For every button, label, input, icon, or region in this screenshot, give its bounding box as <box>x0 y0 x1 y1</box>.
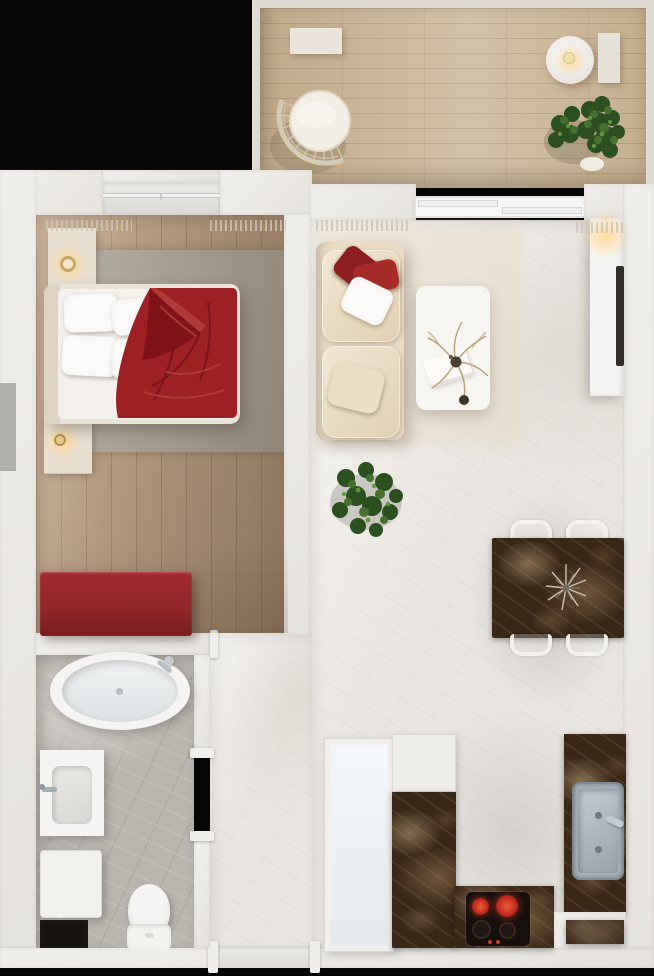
bedroom-door-frame <box>210 630 218 658</box>
cooktop-knob-1 <box>488 940 492 944</box>
balcony-potted-plant <box>540 84 636 180</box>
wall-left-niche <box>0 383 16 471</box>
sink-drain-bottom <box>595 846 602 853</box>
hallway-floor <box>210 633 312 948</box>
coffee-table-decor-branches <box>420 316 490 412</box>
wall-window-top-band <box>103 170 220 182</box>
cooktop-knob-2 <box>496 940 500 944</box>
bathroom-door-frame-bottom <box>190 831 214 841</box>
balcony-wall-shelf <box>290 28 342 54</box>
bathroom-door-frame-top <box>190 748 214 758</box>
dining-centerpiece <box>542 554 590 618</box>
burner-hot-large <box>496 895 518 917</box>
red-dresser-bench <box>40 572 192 636</box>
bathtub-drain <box>116 688 123 695</box>
wardrobe-top-panel <box>331 745 387 945</box>
kitchen-counter-left <box>392 792 456 948</box>
floorplan-stage <box>0 0 654 976</box>
wall-top-living-left <box>310 184 416 220</box>
wicker-lounge-chair <box>264 88 358 182</box>
living-floor-plant <box>318 446 416 546</box>
candle <box>563 52 575 64</box>
wall-left <box>0 170 36 948</box>
curtain-fringe-bedroom-right <box>210 220 286 231</box>
kitchen-white-cabinet <box>392 734 456 792</box>
curtain-fringe-living-right <box>576 222 626 233</box>
sliding-door-panel-left <box>418 200 498 207</box>
vanity-faucet-handle <box>39 784 45 790</box>
burner-cold-right <box>499 922 516 939</box>
wall-top-mid <box>220 170 312 215</box>
dining-chair-bottom-1 <box>510 634 552 656</box>
entry-threshold <box>216 946 312 968</box>
wall-bathroom-right-lower <box>194 839 210 948</box>
toilet-flush-button <box>145 933 154 938</box>
red-duvet <box>108 282 240 424</box>
wall-bathroom-right-upper <box>194 655 210 755</box>
curtain-fringe-living-left <box>316 220 410 231</box>
sliding-door-panel-right <box>502 207 582 214</box>
balcony-storage-bench <box>598 33 620 83</box>
kitchen-sink-basin <box>578 789 618 873</box>
wall-lamp-bottom <box>54 434 66 446</box>
wall-right <box>624 184 654 948</box>
wall-top-living-right <box>584 184 626 220</box>
bedroom-window-divider <box>160 193 162 200</box>
curtain-fringe-bedroom-left <box>46 220 132 231</box>
tv-panel <box>616 266 624 366</box>
vanity-sink-basin <box>52 766 92 824</box>
bathroom-storage-niche <box>40 920 88 948</box>
wall-lamp-top <box>60 256 76 272</box>
burner-cold-left <box>472 920 491 939</box>
washing-machine <box>40 850 102 918</box>
wall-bedroom-living-divider <box>284 214 310 635</box>
burner-hot-small <box>472 898 489 915</box>
dining-chair-bottom-2 <box>566 634 608 656</box>
entry-door-frame-right <box>310 941 320 973</box>
nightstand-bottom <box>44 416 92 474</box>
kitchen-window-niche <box>566 920 624 944</box>
sink-drain-top <box>595 812 602 819</box>
